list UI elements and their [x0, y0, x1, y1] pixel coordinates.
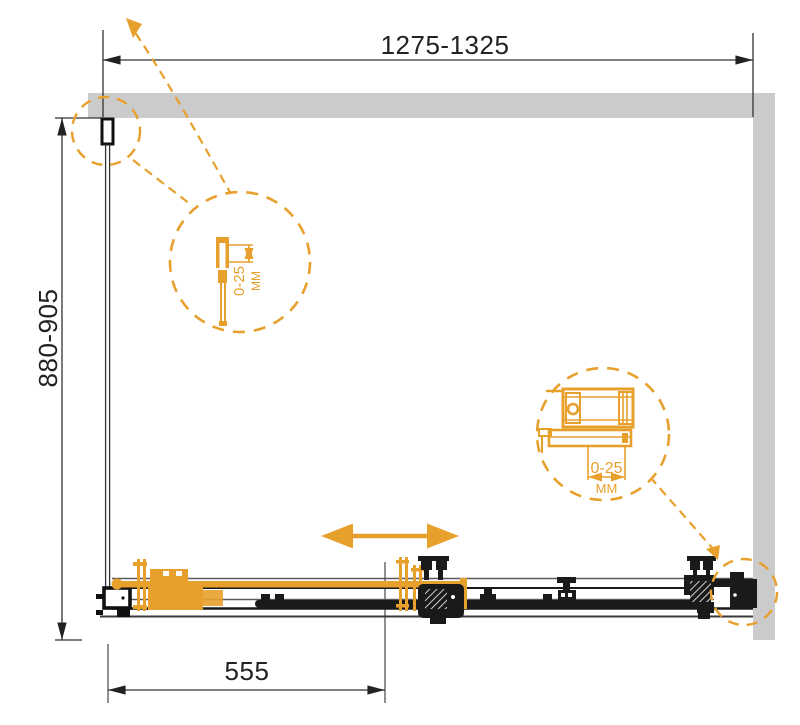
right-wall	[753, 93, 775, 640]
sliding-door	[112, 556, 468, 624]
slide-direction-arrow	[321, 524, 459, 549]
detail2-value: 0-25	[590, 460, 622, 477]
right-roller-hatch	[690, 581, 711, 602]
glass-clip	[275, 594, 284, 601]
detail-circle-bracket: 0-25 ММ	[537, 368, 669, 500]
wall-mount-arm	[711, 572, 757, 608]
track-left-end-cap	[96, 588, 130, 617]
width-dimension-label: 1275-1325	[381, 30, 510, 60]
detail1-value: 0-25	[231, 266, 248, 296]
door-right-roller	[396, 556, 464, 624]
wall-profile-top	[102, 119, 113, 144]
end-cap-foot	[117, 608, 130, 617]
glass-clip	[543, 594, 552, 601]
detail1-unit: ММ	[249, 271, 263, 291]
shower-enclosure-diagram: 1275-1325 880-905 555	[0, 0, 800, 725]
technical-drawing-page: 1275-1325 880-905 555	[0, 0, 800, 725]
side-panel	[102, 119, 113, 590]
glass-clip	[261, 594, 270, 601]
door-width-label: 555	[225, 656, 270, 686]
leader-arrowhead	[126, 18, 142, 38]
top-wall	[88, 93, 775, 118]
roller-hatch	[425, 589, 447, 609]
detail2-unit: ММ	[596, 481, 618, 496]
detail-circle-wall-profile: 0-25 ММ	[170, 192, 310, 332]
depth-dimension-label: 880-905	[33, 289, 63, 388]
track-clip	[480, 588, 496, 603]
callout-leader-2	[650, 477, 720, 560]
